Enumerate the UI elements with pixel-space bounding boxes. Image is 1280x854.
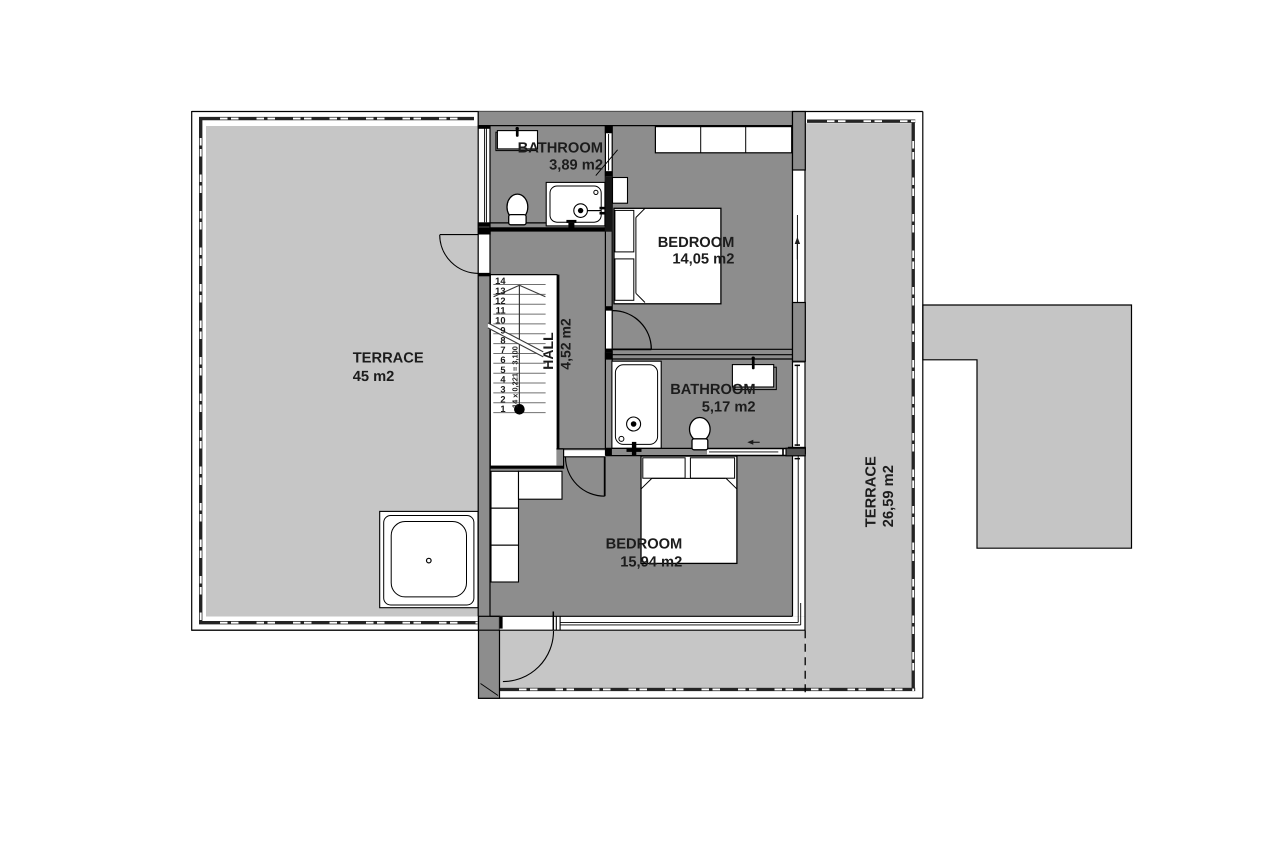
svg-text:15,94 m2: 15,94 m2 <box>620 555 682 571</box>
svg-text:7: 7 <box>500 345 505 355</box>
svg-text:3,89 m2: 3,89 m2 <box>549 158 603 174</box>
svg-text:1: 1 <box>500 404 505 414</box>
svg-text:BATHROOM: BATHROOM <box>518 141 603 157</box>
svg-text:26,59 m2: 26,59 m2 <box>881 465 897 527</box>
svg-text:BEDROOM: BEDROOM <box>606 537 683 553</box>
svg-text:BATHROOM: BATHROOM <box>670 382 755 398</box>
svg-text:2: 2 <box>500 394 505 404</box>
svg-text:TERRACE: TERRACE <box>864 456 880 527</box>
svg-text:10: 10 <box>495 316 505 326</box>
svg-text:HALL: HALL <box>540 332 556 370</box>
svg-text:4: 4 <box>500 375 506 385</box>
svg-text:TERRACE: TERRACE <box>353 351 424 367</box>
svg-text:13: 13 <box>495 286 505 296</box>
svg-text:5: 5 <box>500 365 505 375</box>
svg-text:3: 3 <box>500 385 505 395</box>
svg-text:6: 6 <box>500 355 505 365</box>
svg-text:11: 11 <box>496 306 506 316</box>
svg-text:BEDROOM: BEDROOM <box>658 235 735 251</box>
svg-text:14: 14 <box>495 276 506 286</box>
svg-text:45 m2: 45 m2 <box>353 369 395 385</box>
svg-text:12: 12 <box>495 296 505 306</box>
svg-text:4,52 m2: 4,52 m2 <box>558 318 574 370</box>
svg-text:14,05 m2: 14,05 m2 <box>672 251 734 267</box>
svg-text:5,17 m2: 5,17 m2 <box>702 399 756 415</box>
svg-text:14 x 0,221 = 3,100: 14 x 0,221 = 3,100 <box>510 346 519 408</box>
svg-text:8: 8 <box>500 335 505 345</box>
svg-text:9: 9 <box>500 325 505 335</box>
